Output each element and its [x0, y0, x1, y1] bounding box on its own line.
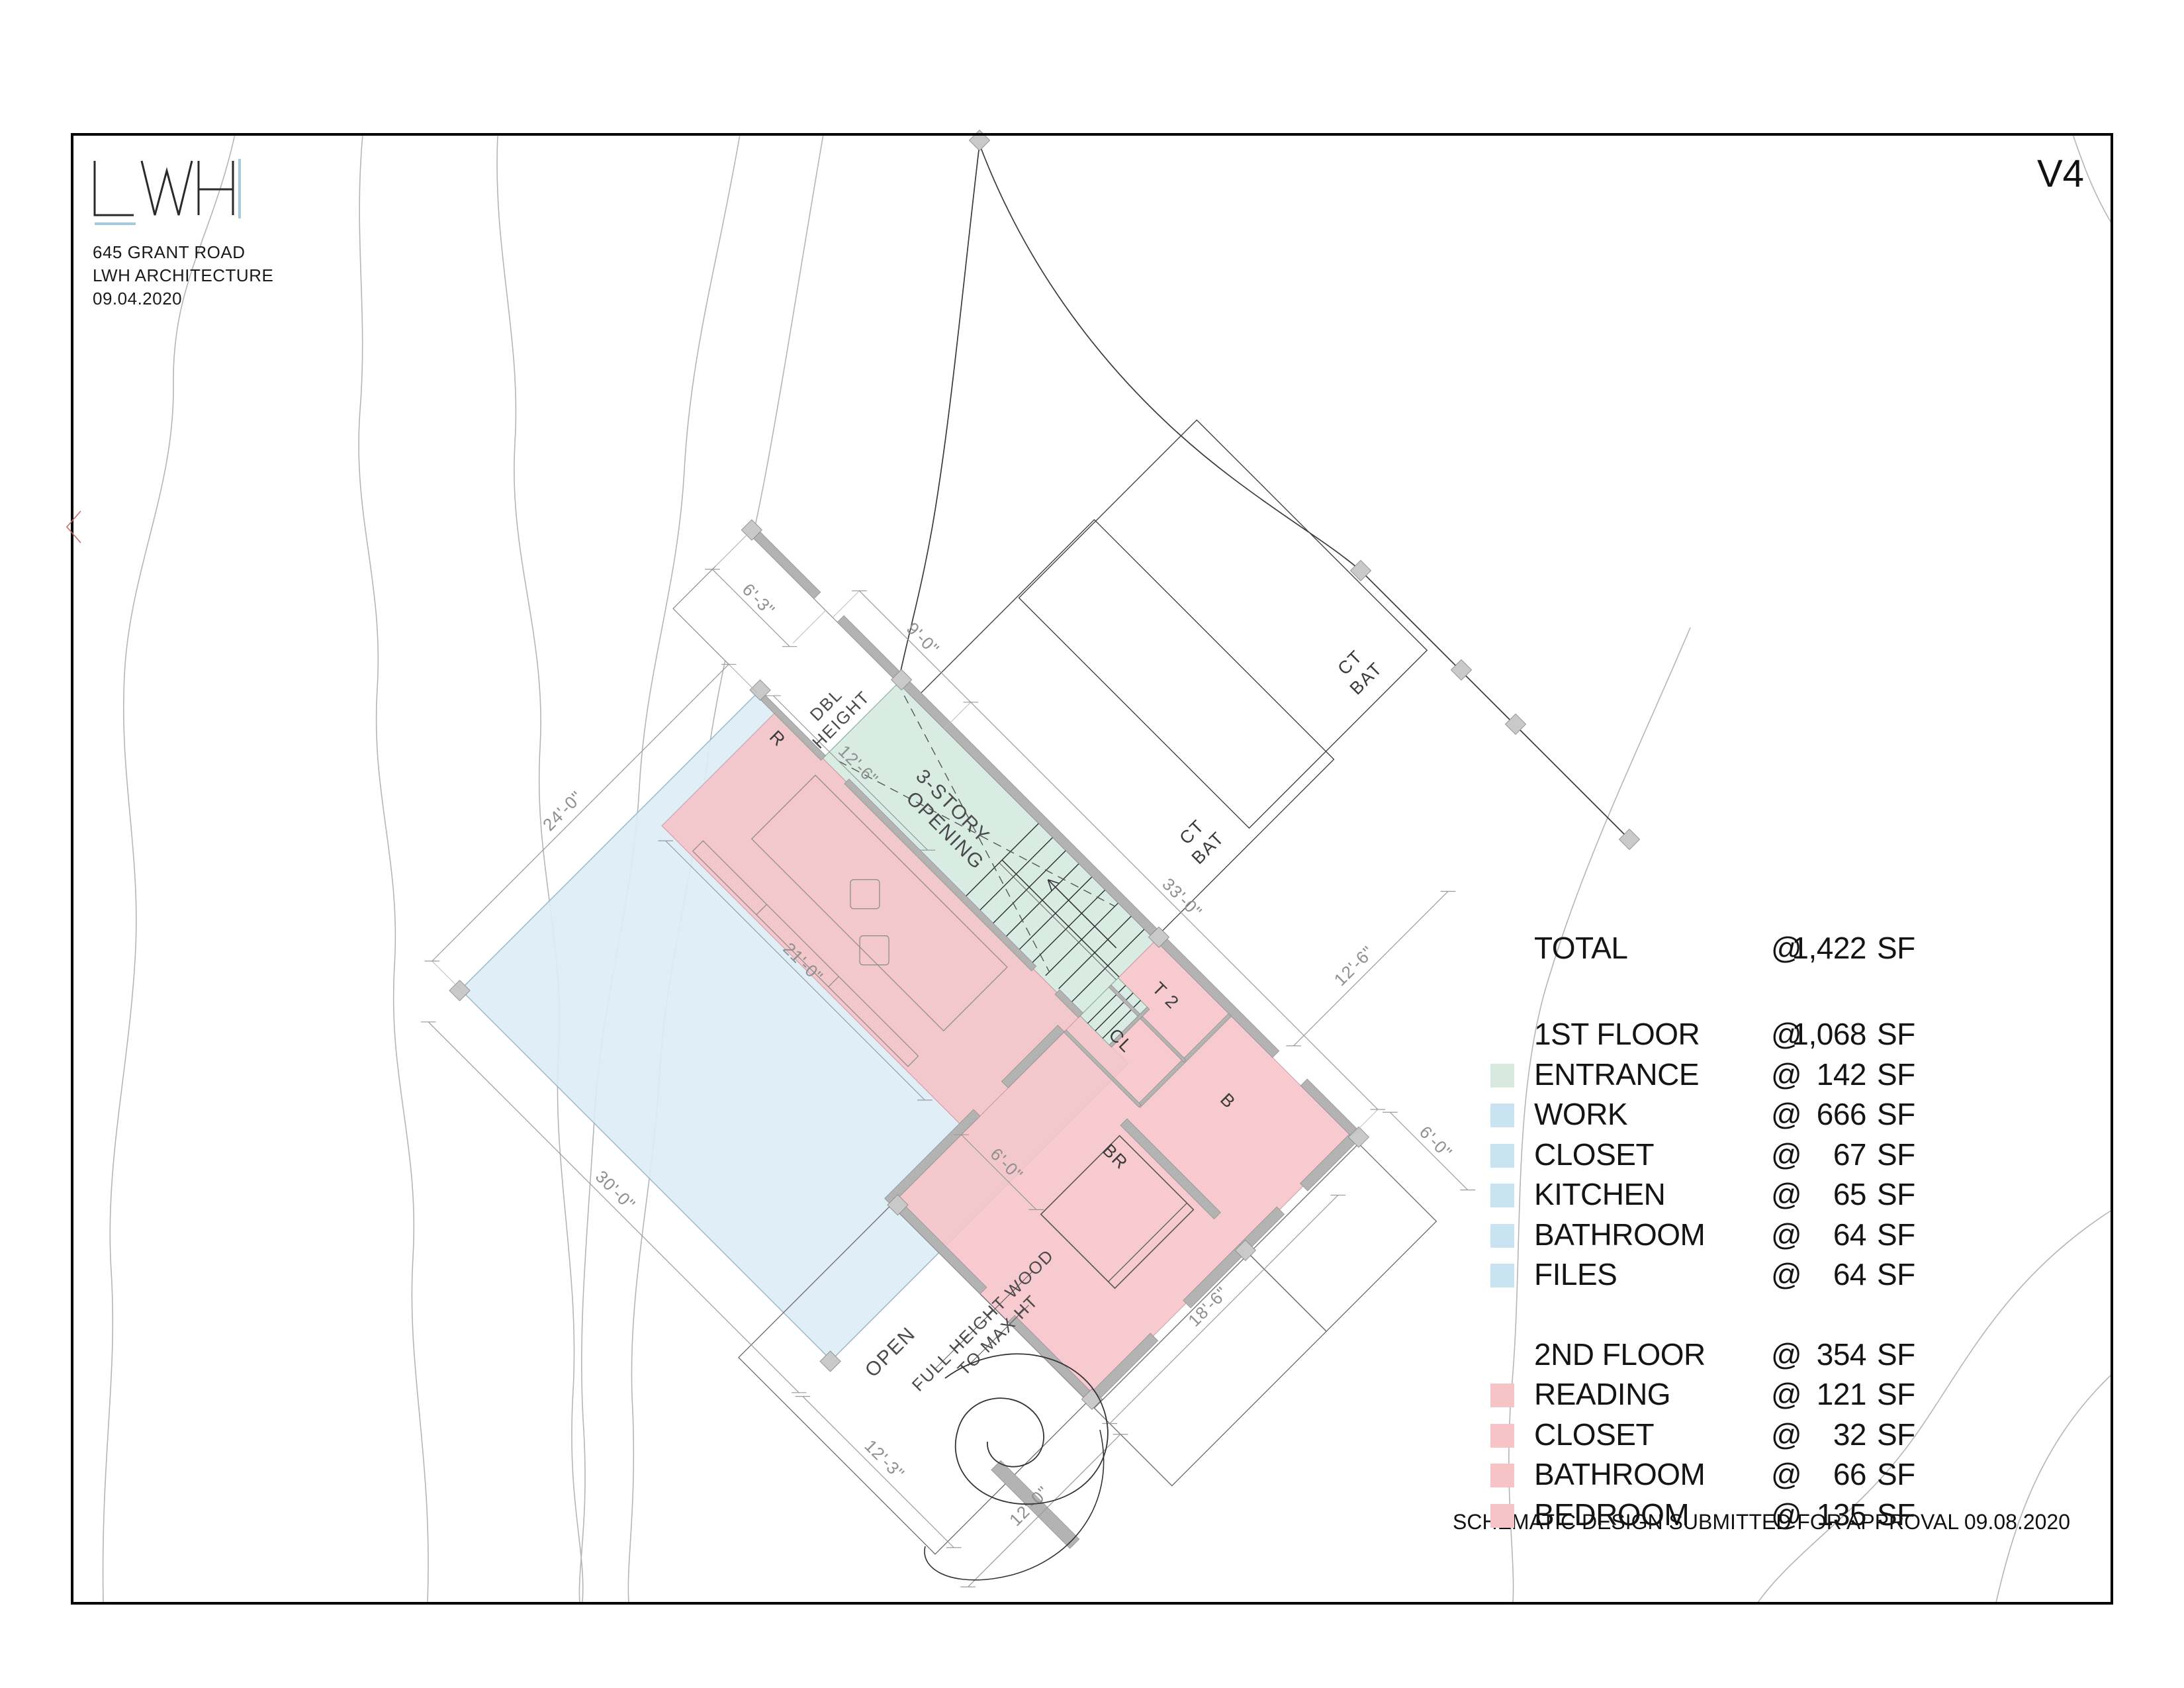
legend-at: @ — [1771, 1497, 1801, 1532]
legend-at: @ — [1771, 1257, 1801, 1291]
legend-at: @ — [1771, 1137, 1801, 1172]
legend-row-kitchen: KITCHEN @ 65 SF — [1490, 1177, 1915, 1211]
lwh-logo — [95, 159, 240, 224]
legend-value: 666 — [1817, 1097, 1866, 1131]
legend-value: 67 — [1833, 1137, 1866, 1172]
version-label: V4 — [2037, 152, 2084, 195]
legend-value: 65 — [1833, 1177, 1866, 1211]
legend-label: BATHROOM — [1534, 1457, 1705, 1491]
legend-value: 354 — [1817, 1337, 1866, 1372]
legend-at: @ — [1771, 1217, 1801, 1252]
legend-row-closet1: CLOSET @ 67 SF — [1490, 1137, 1915, 1172]
legend-unit: SF — [1877, 1257, 1915, 1291]
legend-swatch-closet1 — [1490, 1144, 1514, 1168]
dim-6-0-right: 6'-0" — [1416, 1122, 1456, 1162]
legend-label: BATHROOM — [1534, 1217, 1705, 1252]
area-legend: TOTAL @ 1,422 SF 1ST FLOOR @ 1,068 SF EN… — [1490, 931, 1915, 1532]
legend-value: 32 — [1833, 1417, 1866, 1452]
legend-row-bathroom2: BATHROOM @ 66 SF — [1490, 1457, 1915, 1491]
legend-unit: SF — [1877, 931, 1915, 965]
legend-swatch-bathroom1 — [1490, 1224, 1514, 1248]
legend-at: @ — [1771, 1177, 1801, 1211]
dim-33-0: 33'-0" — [1158, 874, 1206, 921]
legend-swatch-reading — [1490, 1383, 1514, 1407]
legend-at: @ — [1771, 1057, 1801, 1092]
dim-12-3: 12'-3" — [860, 1436, 908, 1483]
legend-label: BEDROOM — [1534, 1497, 1689, 1532]
legend-unit: SF — [1877, 1217, 1915, 1252]
legend-row-total: TOTAL @ 1,422 SF — [1534, 931, 1915, 965]
legend-row-files: FILES @ 64 SF — [1490, 1257, 1915, 1291]
open-label: OPEN — [861, 1323, 920, 1382]
dim-24-0: 24'-0" — [539, 787, 586, 835]
legend-unit: SF — [1877, 1097, 1915, 1131]
legend-row-floor1: 1ST FLOOR @ 1,068 SF — [1534, 1017, 1915, 1051]
legend-swatch-kitchen — [1490, 1184, 1514, 1207]
legend-label: TOTAL — [1534, 931, 1628, 965]
address-line2: LWH ARCHITECTURE — [93, 265, 273, 285]
legend-row-closet2: CLOSET @ 32 SF — [1490, 1417, 1915, 1452]
legend-row-floor2: 2ND FLOOR @ 354 SF — [1534, 1337, 1915, 1372]
legend-at: @ — [1771, 1457, 1801, 1491]
legend-label: CLOSET — [1534, 1137, 1654, 1172]
schematic-design-sheet: CT BAT CT BAT — [0, 0, 2184, 1688]
legend-value: 64 — [1833, 1217, 1866, 1252]
survey-markers — [969, 130, 1639, 849]
legend-at: @ — [1771, 1377, 1801, 1411]
legend-value: 142 — [1817, 1057, 1866, 1092]
legend-label: ENTRANCE — [1534, 1057, 1699, 1092]
legend-label: READING — [1534, 1377, 1670, 1411]
legend-value: 121 — [1817, 1377, 1866, 1411]
legend-label: KITCHEN — [1534, 1177, 1665, 1211]
legend-unit: SF — [1877, 1417, 1915, 1452]
legend-at: @ — [1771, 1097, 1801, 1131]
legend-unit: SF — [1877, 1057, 1915, 1092]
legend-at: @ — [1771, 1337, 1801, 1372]
legend-unit: SF — [1877, 1177, 1915, 1211]
legend-at: @ — [1771, 1417, 1801, 1452]
legend-swatch-bathroom2 — [1490, 1464, 1514, 1487]
legend-value: 1,422 — [1792, 931, 1866, 965]
legend-row-reading: READING @ 121 SF — [1490, 1377, 1915, 1411]
sheet-date: 09.04.2020 — [93, 289, 182, 308]
legend-value: 1,068 — [1792, 1017, 1866, 1051]
legend-unit: SF — [1877, 1137, 1915, 1172]
legend-value: 66 — [1833, 1457, 1866, 1491]
legend-unit: SF — [1877, 1377, 1915, 1411]
address-line1: 645 GRANT ROAD — [93, 242, 245, 262]
dim-12-6-right: 12'-6" — [1330, 942, 1378, 990]
property-lines — [898, 130, 1640, 849]
legend-swatch-bedroom — [1490, 1504, 1514, 1528]
legend-value: 64 — [1833, 1257, 1866, 1291]
legend-label: 1ST FLOOR — [1534, 1017, 1700, 1051]
legend-swatch-work — [1490, 1103, 1514, 1127]
dim-30-0: 30'-0" — [592, 1166, 639, 1214]
legend-row-bathroom1: BATHROOM @ 64 SF — [1490, 1217, 1915, 1252]
legend-unit: SF — [1877, 1017, 1915, 1051]
red-chevron-mark — [67, 511, 81, 543]
legend-swatch-entrance — [1490, 1064, 1514, 1088]
legend-swatch-closet2 — [1490, 1424, 1514, 1448]
legend-unit: SF — [1877, 1497, 1915, 1532]
legend-value: 135 — [1817, 1497, 1866, 1532]
legend-unit: SF — [1877, 1457, 1915, 1491]
legend-row-work: WORK @ 666 SF — [1490, 1097, 1915, 1131]
legend-swatch-files — [1490, 1264, 1514, 1288]
legend-label: WORK — [1534, 1097, 1628, 1131]
legend-row-entrance: ENTRANCE @ 142 SF — [1490, 1057, 1915, 1092]
legend-unit: SF — [1877, 1337, 1915, 1372]
legend-label: 2ND FLOOR — [1534, 1337, 1706, 1372]
legend-label: FILES — [1534, 1257, 1617, 1291]
legend-label: CLOSET — [1534, 1417, 1654, 1452]
